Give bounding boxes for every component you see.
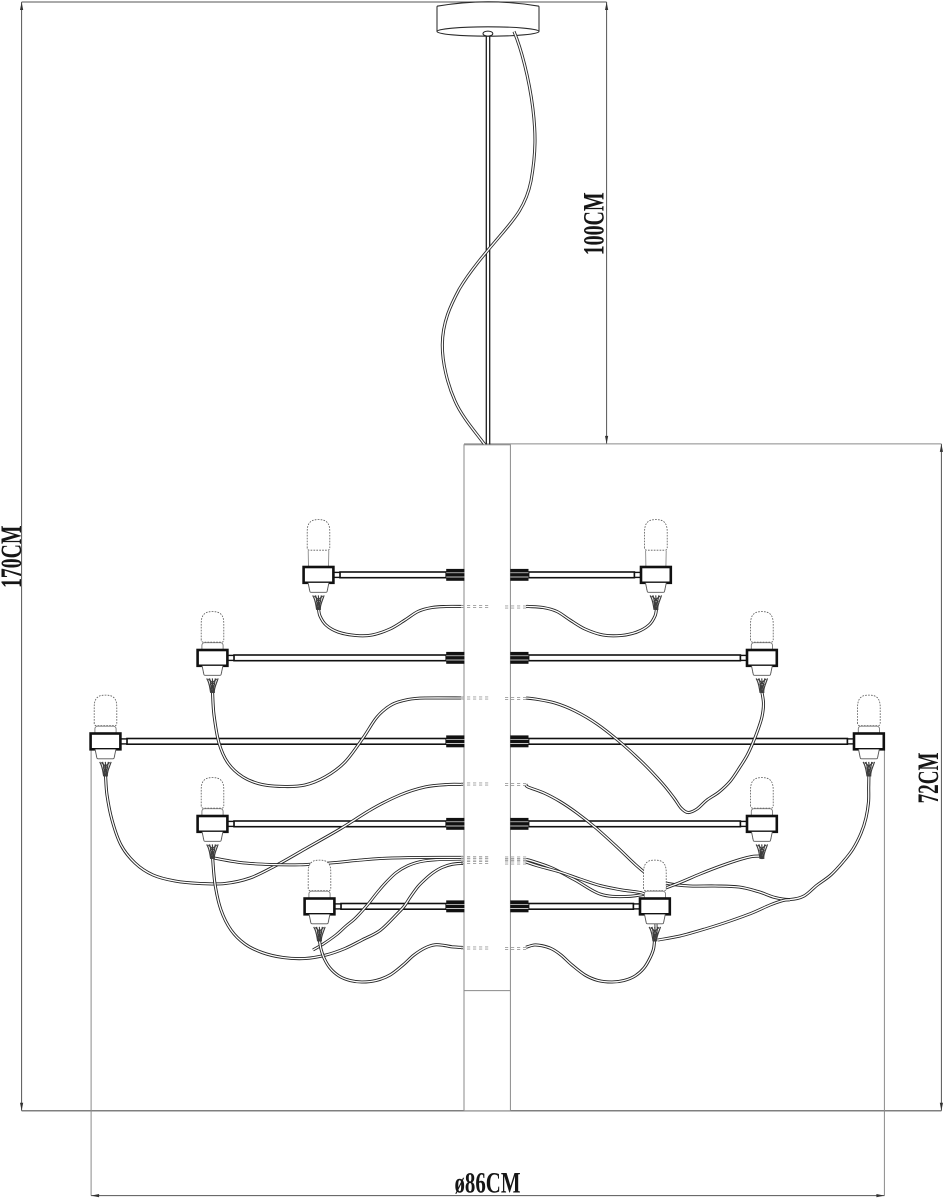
- svg-text:ø86CM: ø86CM: [455, 1166, 521, 1199]
- svg-text:72CM: 72CM: [912, 752, 945, 803]
- svg-text:100CM: 100CM: [578, 192, 611, 255]
- svg-text:170CM: 170CM: [0, 525, 28, 588]
